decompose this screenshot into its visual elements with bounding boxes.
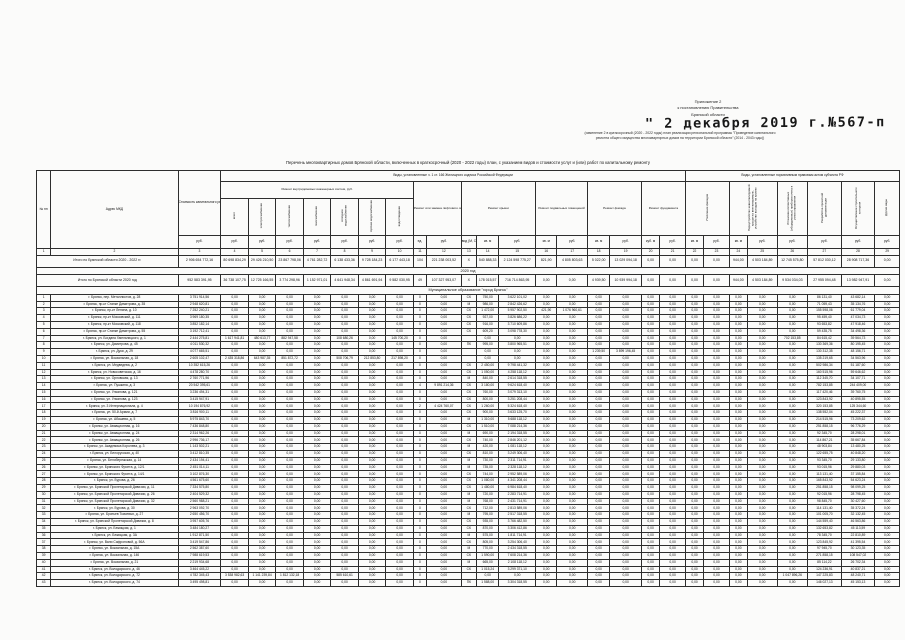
table-row: 41г. Брянск, ул. Володарского, д. 463 46… [37,566,900,573]
row-value: 0,00 [610,532,642,539]
row-value: 0,00 [729,573,747,580]
unit-header-8: ед. [413,235,426,248]
row-value: 0,00 [221,369,249,376]
row-value: 750,00 [476,294,498,301]
row-value: 0,00 [660,403,686,410]
subgroup-header-0: Ремонт внутридомовых инженерных систем, … [221,182,414,199]
row-value: 0,00 [221,410,249,417]
row-value: 101 005,70 [808,512,842,519]
row-value: 0,00 [276,383,304,390]
row-value: 0,00 [427,566,462,573]
row-number: 42 [37,573,51,580]
row-value: 0,00 [248,403,276,410]
row-value: 0,00 [641,485,659,492]
row-value: 0,00 [331,403,359,410]
row-value: 421,90 [536,308,557,315]
row-value: 0,00 [276,410,304,417]
row-value: 32 132,45 [841,512,875,519]
row-value: 0,00 [685,315,703,322]
row-value: 643 987,35 [248,355,276,362]
row-value: 1 141 239,84 [248,573,276,580]
row-value: 0,00 [777,478,808,485]
row-value: 0,00 [685,498,703,505]
row-value: 0,00 [557,566,588,573]
row-value: 2 846 201,12 [499,437,536,444]
row-value: 0,00 [704,430,729,437]
row-value: 0,00 [557,321,588,328]
row-value: 0,00 [386,342,414,349]
row-value: 3 899 196,45 [610,349,642,356]
row-value: 0,00 [386,349,414,356]
row-value: 0,00 [587,389,609,396]
row-value: 29 880,03 [841,464,875,471]
row-value: 0,00 [536,498,557,505]
row-value: 805,00 [476,539,498,546]
row-value: 0,00 [587,573,609,580]
row-value: 0,00 [777,349,808,356]
row-value: 0,00 [685,362,703,369]
row-value: 0,00 [729,362,747,369]
row-value: 2 314 962,26 [178,430,221,437]
row-value: 0,00 [536,580,557,587]
row-value: 1 310,00 [476,417,498,424]
row-value: 48 156,71 [841,349,875,356]
row-value: 0,00 [685,430,703,437]
row-value: 1 047 896,26 [777,573,808,580]
row-value: 0,00 [660,491,686,498]
row-value: 0,00 [610,417,642,424]
row-value: 0,00 [536,471,557,478]
row-value: 73 209,62 [841,417,875,424]
row-value: СК [461,471,476,478]
row-value: 0,00 [536,294,557,301]
row-value: 690,00 [476,430,498,437]
row-value: 22 810,89 [841,532,875,539]
rf-subgroup-header-0: Утепление фасадов [685,182,729,236]
row-value: 0,00 [303,566,331,573]
row-value: 0,00 [875,342,900,349]
row-value: 0,00 [331,423,359,430]
row-value: 3 484 180,27 [178,525,221,532]
row-value: 0,00 [587,580,609,587]
row-value: 0,00 [587,321,609,328]
totals-value: 57 812 030,12 [808,255,842,267]
row-value: 0,00 [641,423,659,430]
row-value: 0,00 [276,525,304,532]
totals-value: 29 426 210,50 [248,255,276,267]
row-address: г. Брянск, ул. Академика Королева, д. 3 [51,444,178,451]
row-value: 2 614 318,55 [499,376,536,383]
row-value: 0,00 [641,546,659,553]
row-value: 0,00 [476,335,498,342]
row-value: 0,00 [557,525,588,532]
row-value: 0,00 [748,478,778,485]
row-value: 0 [413,389,426,396]
unit-header-21: кв. м [729,235,747,248]
row-value: 0,00 [610,369,642,376]
rf-subgroup-header-3: Разработка проектной документации [808,182,842,236]
row-value: 0,00 [641,464,659,471]
col-number-8: 9 [358,248,386,255]
table-row: 38г. Брянск, ул. Вокзальная, д. 15А2 562… [37,546,900,553]
col-number-15: 16 [536,248,557,255]
row-value: 0,00 [704,471,729,478]
row-value: 0,00 [221,321,249,328]
row-value: 0,00 [303,417,331,424]
row-value: 0,00 [641,471,659,478]
row-number: 41 [37,566,51,573]
row-value: 0,00 [660,532,686,539]
row-value: 0,00 [660,471,686,478]
row-value: 2 444 275,81 [178,335,221,342]
row-value: 0,00 [248,328,276,335]
row-value: 0,00 [557,403,588,410]
col-number-4: 5 [248,248,276,255]
row-value: 0,00 [660,315,686,322]
row-value: 0 [413,546,426,553]
row-value: 0,00 [276,417,304,424]
col-number-1: 2 [51,248,178,255]
row-value: 0,00 [660,566,686,573]
row-value: 0,00 [587,383,609,390]
row-value: 0,00 [331,342,359,349]
row-value: 0,00 [610,559,642,566]
row-value: 1 015,24 [476,566,498,573]
row-value: 144 559,40 [808,519,842,526]
row-value: 2 451 014,11 [178,464,221,471]
row-value: 0,00 [476,349,498,356]
row-value: 0,00 [704,389,729,396]
row-value: 0,00 [610,403,642,410]
row-value: 0,00 [303,376,331,383]
row-number: 23 [37,444,51,451]
row-value: 0,00 [276,396,304,403]
row-value: 0,00 [610,389,642,396]
row-value: 4 424 760,07 [427,403,462,410]
row-value: 0,00 [248,396,276,403]
row-value: 0,00 [358,491,386,498]
row-value: 0,00 [276,362,304,369]
row-value: 0,00 [221,580,249,587]
row-value: 0,00 [587,519,609,526]
row-value: 0,00 [386,423,414,430]
unit-header-7: руб. [386,235,414,248]
totals-value: 36 738 107,75 [221,275,249,287]
unit-header-17: куб. м [641,235,659,248]
row-value: 28 298,01 [841,430,875,437]
row-value: 0,00 [610,321,642,328]
row-value: 0,00 [748,451,778,458]
row-value: 0,00 [221,478,249,485]
row-value: 0,00 [704,294,729,301]
row-value: 0,00 [358,457,386,464]
row-value: 0,00 [276,539,304,546]
row-value: 3 299 371,10 [499,566,536,573]
row-value: 0 [413,566,426,573]
row-value: 0,00 [610,485,642,492]
row-value: 0,00 [660,457,686,464]
row-value: 0,00 [358,512,386,519]
row-value: 0,00 [729,553,747,560]
row-value: 0,00 [331,505,359,512]
row-value: 0,00 [777,410,808,417]
row-value: М [461,444,476,451]
row-value: 0,00 [641,396,659,403]
subgroup-header-2: Ремонт крыши [461,182,535,236]
row-value: 130 369,36 [808,342,842,349]
row-value: 0,00 [704,478,729,485]
col-number-11: 12 [427,248,462,255]
row-value: 2 560 988,21 [178,498,221,505]
row-value: 0,00 [610,566,642,573]
row-value: 0,00 [248,464,276,471]
row-value: 0,00 [427,491,462,498]
row-value: 1 812 132,18 [276,573,304,580]
row-value: 0,00 [704,485,729,492]
row-value: 0,00 [777,566,808,573]
row-value: 0,00 [303,294,331,301]
row-value: 0,00 [427,512,462,519]
row-value: 1 080,00 [476,478,498,485]
row-value: 0,00 [386,546,414,553]
row-value: 1 260,00 [476,403,498,410]
row-value: 0,00 [685,437,703,444]
row-value: 5 688 118,12 [499,417,536,424]
row-value: 0,00 [729,315,747,322]
row-value: 0,00 [660,512,686,519]
row-value: 0,00 [276,519,304,526]
row-value: 0,00 [303,301,331,308]
totals-value: 944,00 [729,275,747,287]
row-value: 0,00 [248,566,276,573]
row-value: 0,00 [386,294,414,301]
row-value: 0,00 [427,471,462,478]
unit-header-13: кв. м [536,235,557,248]
row-value: 7 608 214,36 [499,553,536,560]
row-value: 0,00 [331,478,359,485]
row-value: 4 341 208,44 [499,478,536,485]
row-value: 770,00 [476,546,498,553]
row-value: 0,00 [386,580,414,587]
row-value: 0,00 [685,301,703,308]
row-value: 0,00 [427,423,462,430]
row-value: 0,00 [685,403,703,410]
unit-header-0: руб. [178,235,221,248]
table-row: 37г. Брянск, ул. Вали Сафроновой, д. 56А… [37,539,900,546]
row-value: 0,00 [875,301,900,308]
row-value: 0,00 [748,369,778,376]
row-value: 0,00 [875,512,900,519]
row-value: 78 345,70 [808,532,842,539]
row-value: 0,00 [248,417,276,424]
row-value: 0,00 [557,315,588,322]
row-value: 0,00 [427,539,462,546]
row-value: 0,00 [875,383,900,390]
row-value: 0,00 [587,553,609,560]
row-value: 3 633 125,70 [499,410,536,417]
unit-header-16: руб. [610,235,642,248]
row-value: 2 450,00 [476,362,498,369]
row-value: 0,00 [704,349,729,356]
row-value: 30 123,35 [841,546,875,553]
row-value: 3 236 494,31 [178,389,221,396]
row-value: 0,00 [610,355,642,362]
row-value: 0,00 [729,559,747,566]
row-value: 0,00 [248,376,276,383]
row-value: 0,00 [587,532,609,539]
row-value: 0,00 [685,580,703,587]
row-value: 1 480,00 [476,485,498,492]
row-value: 0,00 [427,321,462,328]
row-value: 0,00 [427,376,462,383]
totals-value: 6 177 443,18 [386,255,414,267]
row-value: 2 434 194,41 [178,457,221,464]
row-value: 0,00 [641,451,659,458]
row-value: 0,00 [587,485,609,492]
table-row: 1г. Брянск, пер. Металлистов, д. 283 751… [37,294,900,301]
row-address: г. Брянск, ул. Володарского, д. 72 [51,573,178,580]
row-value: 0,00 [358,396,386,403]
unit-header-24: руб. [808,235,842,248]
row-value: 0,00 [875,389,900,396]
row-value: 0,00 [248,294,276,301]
row-value: 0,00 [386,457,414,464]
row-value: 0,00 [303,519,331,526]
row-value: 0,00 [587,308,609,315]
row-value: 0,00 [777,301,808,308]
row-value: 0,00 [386,410,414,417]
row-value: 0,00 [660,437,686,444]
row-value: 0,00 [704,525,729,532]
row-value: 0,00 [641,389,659,396]
row-value: 0,00 [427,437,462,444]
subgroup-header-5: Ремонт фундамента [641,182,685,236]
row-value: 0,00 [358,532,386,539]
row-value: 0,00 [875,546,900,553]
row-value: 2 996 736,17 [178,437,221,444]
table-row: 24г. Брянск, ул. Белорусская, д. 403 412… [37,451,900,458]
row-value: 0,00 [427,396,462,403]
totals-value: 4 861 691,94 [358,275,386,287]
totals-value: 9 728 184,23 [358,255,386,267]
row-value: 0,00 [557,519,588,526]
row-value: 0 [413,328,426,335]
mkd-table-wrap: № ппАдрес МКДСтоимость капитального ремо… [36,170,900,587]
row-value: 0,00 [685,559,703,566]
row-value: 0,00 [358,485,386,492]
row-value: 0,00 [303,321,331,328]
row-value: 0,00 [704,512,729,519]
row-value: 0,00 [557,532,588,539]
row-value: 0,00 [641,580,659,587]
row-value: 0,00 [748,471,778,478]
row-value: 0,00 [729,546,747,553]
row-value: 0,00 [248,451,276,458]
row-value: 0,00 [276,315,304,322]
row-value: 2 650 456,70 [178,512,221,519]
row-value: 0,00 [748,315,778,322]
row-value: 0,00 [748,410,778,417]
rf-subgroup-header-4: Осуществление строительного контроля [841,182,875,236]
row-value: 4 011 530,32 [178,342,221,349]
system-col-header-6: водоотведение [386,199,414,236]
totals-value: 28 908 717,36 [841,255,875,267]
row-value: 92 015,96 [808,491,842,498]
row-value: 0,00 [536,369,557,376]
row-value: 0,00 [587,512,609,519]
row-value: 0,00 [704,505,729,512]
row-value: 0,00 [610,451,642,458]
row-value: 0,00 [660,369,686,376]
row-value: 0,00 [641,301,659,308]
row-value: М [461,457,476,464]
row-value: 0,00 [557,451,588,458]
table-row: 20г. Брянск, ул. Авиационная, д. 167 436… [37,423,900,430]
row-value: 0,00 [248,532,276,539]
row-value: 0,00 [777,505,808,512]
row-value: 0,00 [276,546,304,553]
row-value: 0,00 [875,505,900,512]
row-value: 0,00 [276,553,304,560]
row-value: 0,00 [499,355,536,362]
row-value: 0,00 [221,471,249,478]
row-value: 0,00 [303,328,331,335]
unit-header-26: руб. [875,235,900,248]
col-number-27: 28 [841,248,875,255]
row-value: 0,00 [331,451,359,458]
row-value: 0,00 [427,451,462,458]
table-row: 27г. Брянск, ул. Брянского Фронта, д. 14… [37,471,900,478]
row-value: 123 845,92 [808,539,842,546]
row-value: 93 653,82 [808,321,842,328]
row-value: 0,00 [685,546,703,553]
row-value: 0,00 [303,423,331,430]
row-value: 0,00 [303,403,331,410]
row-value: 0,00 [777,430,808,437]
row-value: 0,00 [386,519,414,526]
table-row: 39г. Брянск, ул. Вокзальная, д. 1467 988… [37,553,900,560]
row-value: 0,00 [704,308,729,315]
row-value: 0,00 [685,294,703,301]
row-value: 0,00 [358,410,386,417]
row-value: 0,00 [221,444,249,451]
row-value: 0,00 [427,342,462,349]
row-value: 92 345,70 [808,430,842,437]
row-value: 0,00 [248,389,276,396]
row-value: 0,00 [427,573,462,580]
row-value: 45 153,13 [841,580,875,587]
row-value: 114 131,40 [808,505,842,512]
unit-header-4: руб. [303,235,331,248]
row-value: 0,00 [331,321,359,328]
row-value: 0,00 [685,566,703,573]
row-value: 0,00 [557,362,588,369]
row-value: 0,00 [221,328,249,335]
totals-value: 27 955 094,48 [808,275,842,287]
row-value: 0,00 [875,532,900,539]
row-value: 2 404 529,32 [178,491,221,498]
row-value: 0,00 [729,471,747,478]
row-value: 0,00 [557,396,588,403]
table-row: 7г. Брянск, ул. Богдана Хмельницкого, д.… [37,335,900,342]
row-value: 0,00 [557,485,588,492]
row-value: 0,00 [221,423,249,430]
row-value: 0,00 [358,342,386,349]
row-value: СК [461,321,476,328]
row-number: 21 [37,430,51,437]
row-value: 0,00 [331,417,359,424]
row-value: СК [461,525,476,532]
